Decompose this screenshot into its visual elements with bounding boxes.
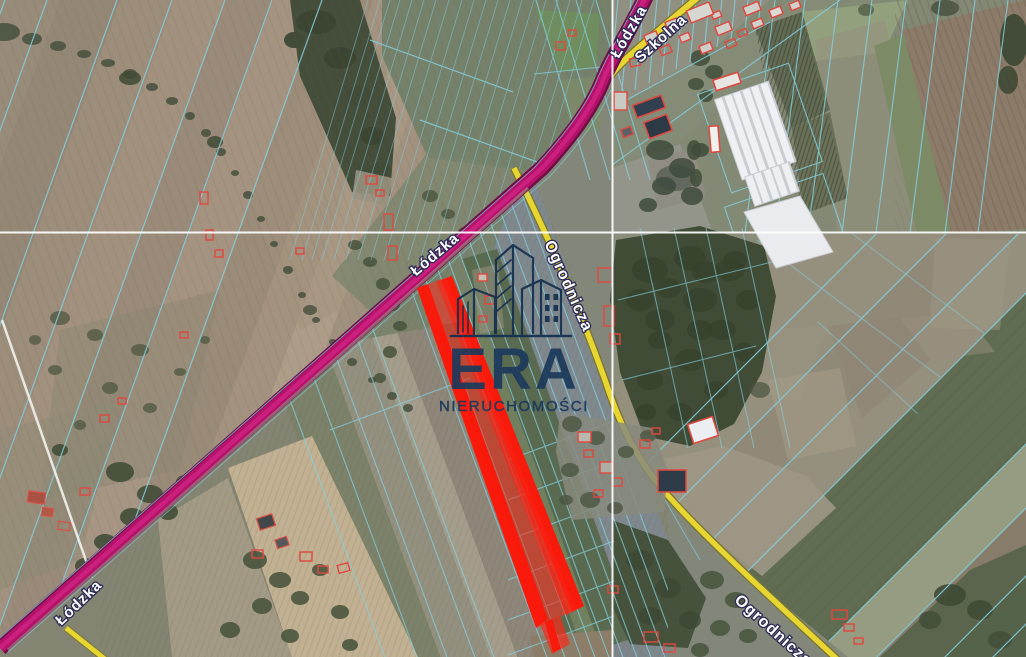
svg-text:NIERUCHOMOŚCI: NIERUCHOMOŚCI	[439, 397, 589, 415]
svg-text:ERA: ERA	[448, 337, 579, 402]
